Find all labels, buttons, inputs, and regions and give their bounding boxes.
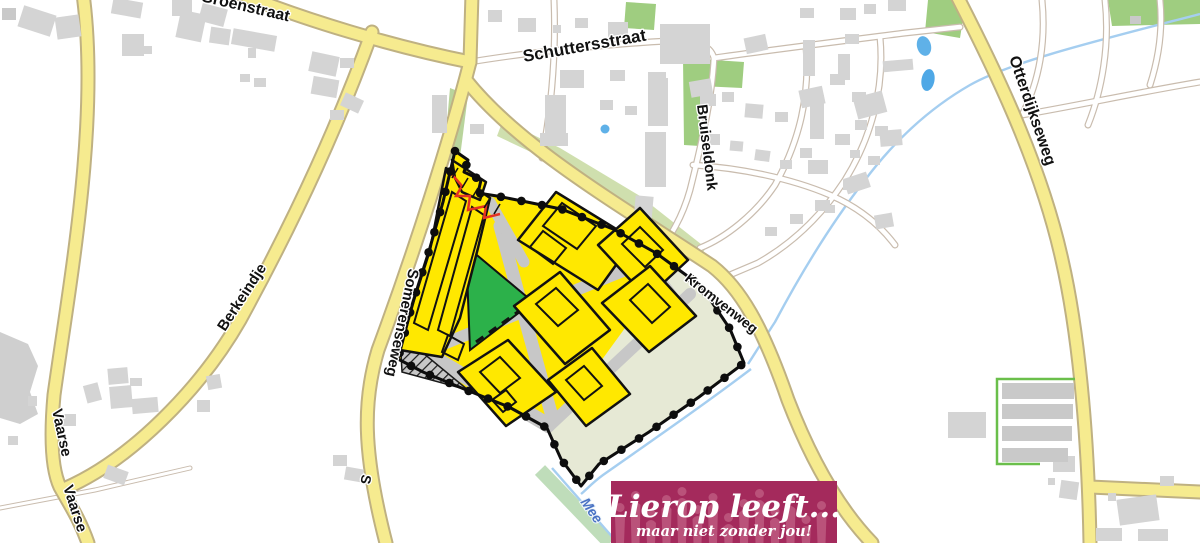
map-canvas: Groenstraat Schuttersstraat Bruiseldonk …: [0, 0, 1200, 543]
road-branch-east: [1090, 487, 1200, 492]
lierop-leeft-logo: Lierop leeft... maar niet zonder jou!: [606, 481, 841, 543]
logo-title: Lierop leeft...: [606, 489, 841, 525]
pond-dot: [601, 125, 610, 134]
road-somerenseweg-north: [470, 0, 472, 62]
logo-subtitle: maar niet zonder jou!: [636, 523, 812, 540]
street-map: Groenstraat Schuttersstraat Bruiseldonk …: [0, 0, 1200, 543]
